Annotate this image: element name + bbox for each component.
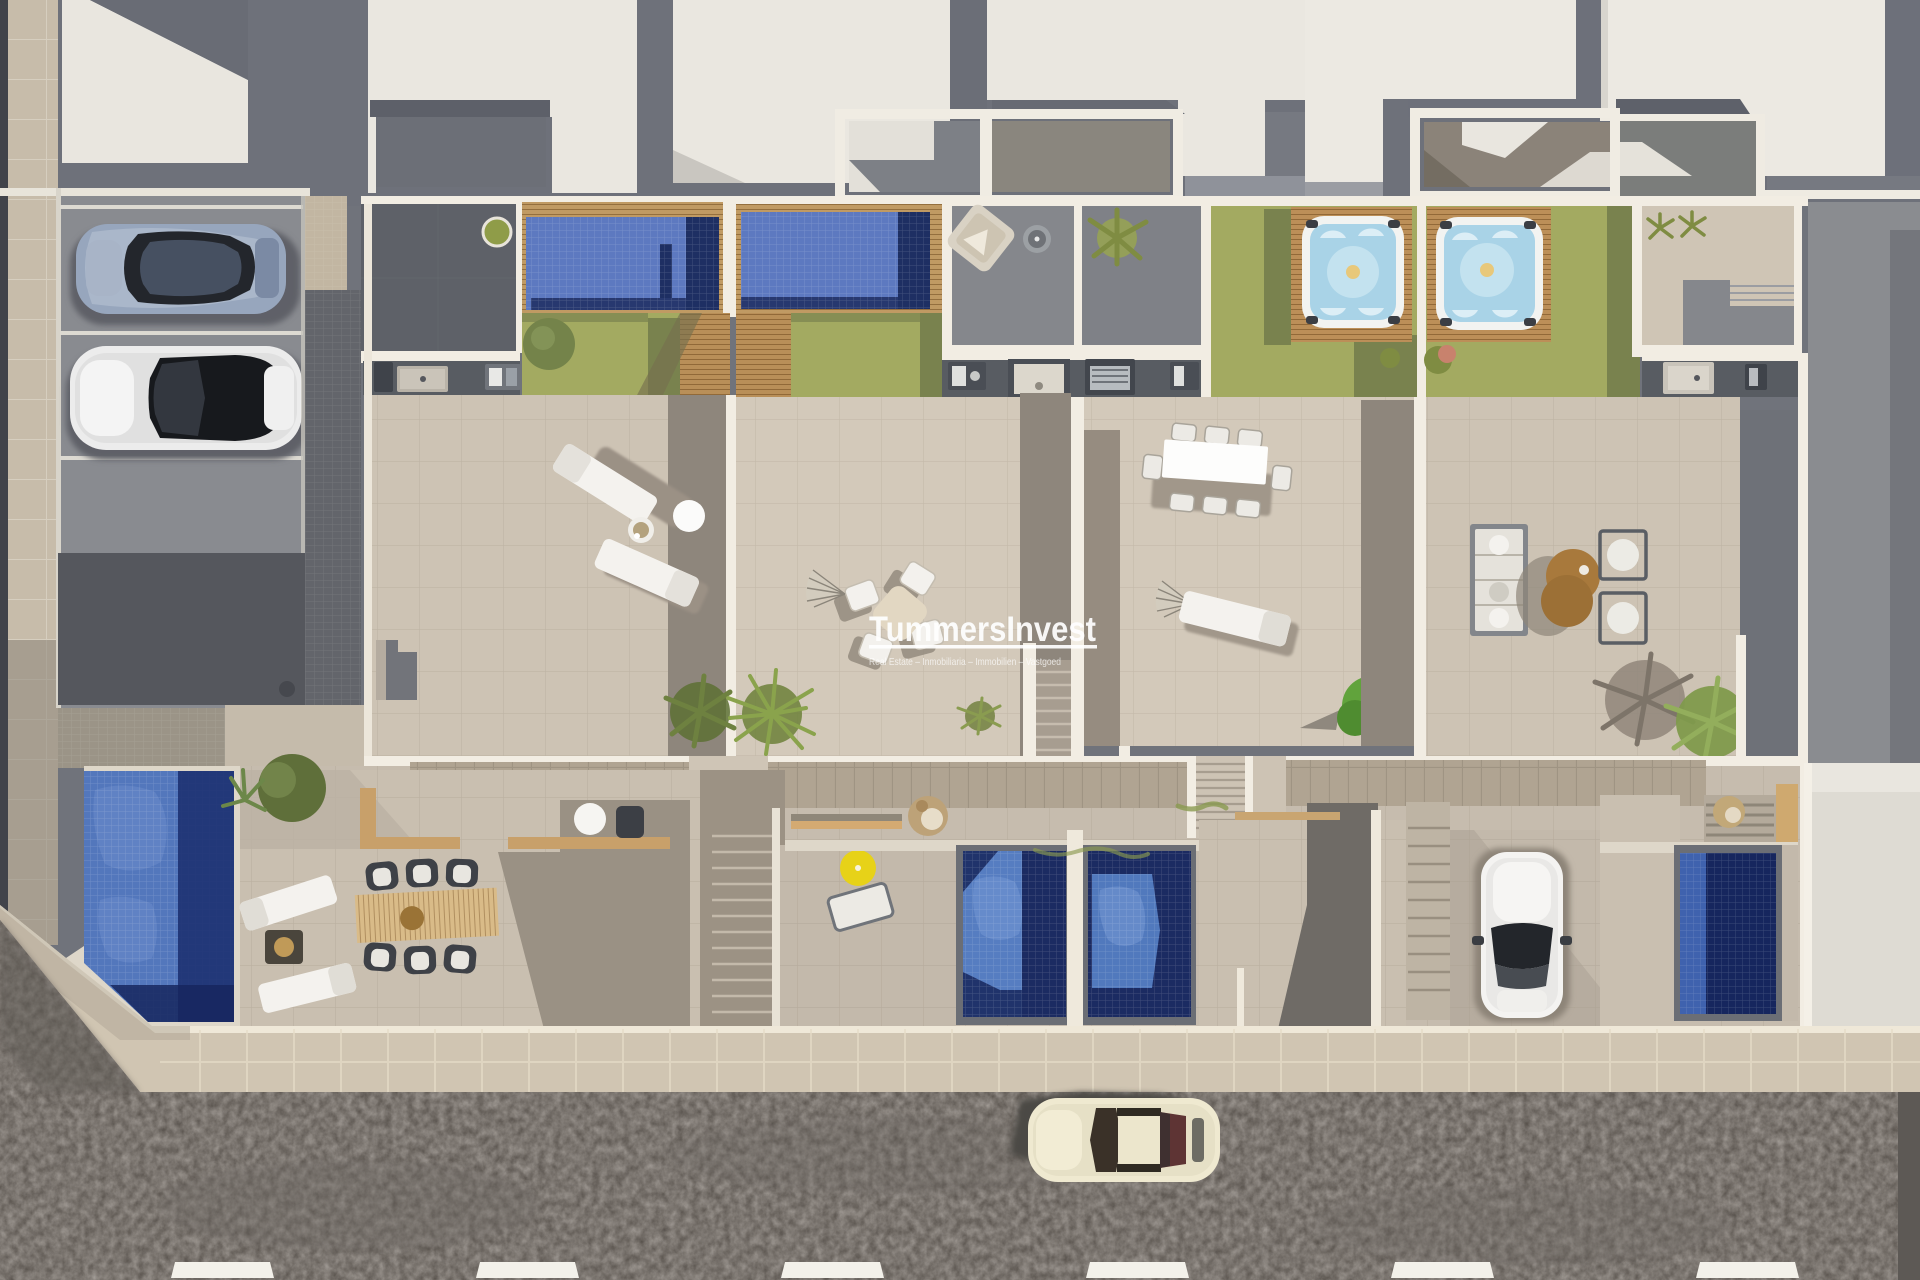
svg-text:Real Estate – Inmobiliaria – I: Real Estate – Inmobiliaria – Immobilien … [869,656,1061,668]
svg-text:TummersInvest: TummersInvest [869,610,1096,649]
